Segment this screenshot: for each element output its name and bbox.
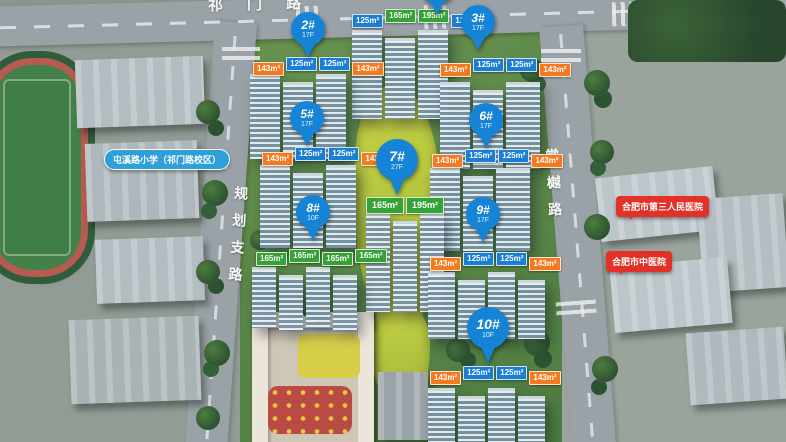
area-tag: 165m² [256,252,287,266]
pin-label: 3# [471,12,484,24]
area-tag: 125m² [496,366,527,380]
pin-label: 10# [476,317,499,331]
tower [518,396,545,442]
pin-floors: 17F [480,123,492,130]
trees [202,180,228,206]
hospital-building [686,327,786,406]
service-building [378,372,428,440]
area-tag: 125m² [286,57,317,71]
pin-head: 3# 17F [461,5,495,39]
area-tag: 125m² [352,14,383,28]
area-tag: 143m² [531,154,562,168]
kindergarten-playground [268,386,352,434]
area-tags-building-7: 165m² 195m² [366,197,444,214]
tower [306,267,330,328]
tower [428,388,455,442]
pin-tail [480,345,496,363]
tower [428,272,455,339]
tower [518,280,545,339]
pin-building-5[interactable]: 5# 17F [290,101,324,146]
area-tag: 143m² [529,257,560,271]
site-plan-aerial-map: 祁门路 规划支路 棠樾路 屯溪路小学（祁门路校区） 合肥市第三人民医院 合肥市中… [0,0,786,442]
hospital-third-label: 合肥市第三人民医院 [616,196,709,217]
area-tag: 143m² [539,63,570,77]
area-tags-building-2: 143m² 125m² 125m² 143m² [253,60,384,74]
pin-head: 7# 27F [376,139,418,181]
pin-label: 9# [476,204,489,216]
area-tag: 143m² [253,62,284,76]
area-tag: 125m² [506,58,537,72]
tower [252,267,276,328]
area-tag: 165m² [322,252,353,266]
sports-pitch [3,79,71,256]
building-10 [428,388,545,442]
trees [584,70,610,96]
area-tag: 165m² [289,249,320,263]
area-tags-building-9: 143m² 125m² 125m² 143m² [430,255,561,269]
pin-building-1-partial[interactable] [420,0,454,15]
tower [326,165,356,248]
area-tag: 143m² [440,63,471,77]
area-tags-building-3: 143m² 125m² 125m² 143m² [440,61,571,75]
pin-building-6[interactable]: 6# 17F [469,103,503,148]
pin-floors: 10F [307,215,319,222]
pin-building-7[interactable]: 7# 27F [376,139,418,195]
area-tag: 195m² [406,197,444,214]
pin-building-2[interactable]: 2# 17F [291,12,325,57]
area-tag: 143m² [352,62,383,76]
pin-label: 8# [306,202,319,214]
pin-floors: 10F [482,332,494,339]
tower [333,275,357,330]
tower [393,221,417,312]
area-tags-building-6: 143m² 125m² 125m² 143m² [432,152,563,166]
area-tag: 125m² [463,366,494,380]
tower [279,275,303,330]
area-tag: 143m² [430,371,461,385]
trees [628,0,786,62]
tower [260,165,290,248]
kindergarten-wing [252,312,268,442]
area-tag: 125m² [498,149,529,163]
area-tag: 143m² [430,257,461,271]
pin-head: 10# 10F [467,307,509,349]
pin-head: 8# 10F [296,195,330,229]
sports-track [0,58,88,277]
kindergarten-yard [298,334,360,378]
pin-tail [305,225,321,240]
trees [584,214,610,240]
trees [590,140,614,164]
trees [204,340,230,366]
pin-building-3[interactable]: 3# 17F [461,5,495,50]
area-tag: 165m² [355,249,386,263]
pin-tail [429,0,445,15]
pin-label: 5# [300,108,313,120]
crosswalk [556,299,597,316]
pin-tail [389,177,405,195]
school-label: 屯溪路小学（祁门路校区） [104,149,230,170]
trees [592,356,618,382]
tower [496,168,530,251]
pin-tail [478,133,494,148]
area-tag: 165m² [385,9,416,23]
pin-label: 2# [301,19,314,31]
pin-floors: 17F [301,121,313,128]
building-8 [252,267,357,330]
pin-head: 5# 17F [290,101,324,135]
pin-head: 2# 17F [291,12,325,46]
pin-floors: 27F [391,164,403,171]
pin-floors: 17F [472,25,484,32]
area-tag: 125m² [463,252,494,266]
pin-label: 6# [479,110,492,122]
area-tag: 143m² [432,154,463,168]
pin-floors: 17F [302,32,314,39]
trees [196,260,220,284]
tower [488,388,515,442]
area-tag: 143m² [529,371,560,385]
pin-floors: 17F [477,217,489,224]
pin-building-9[interactable]: 9# 17F [466,197,500,242]
area-tags-building-10: 143m² 125m² 125m² 143m² [430,369,561,383]
pin-building-10[interactable]: 10# 10F [467,307,509,363]
trees [196,406,220,430]
area-tag: 125m² [496,252,527,266]
hospital-tcm-label: 合肥市中医院 [606,251,672,272]
pin-building-8[interactable]: 8# 10F [296,195,330,240]
kindergarten [252,312,374,442]
kindergarten-wing [358,312,374,442]
pin-tail [299,131,315,146]
tower [385,38,415,119]
crosswalk [541,48,581,62]
tower [458,396,485,442]
school-building [75,56,205,128]
pin-label: 7# [389,149,405,163]
school-building [95,236,205,304]
tower [250,74,280,159]
pin-head: 9# 17F [466,197,500,231]
pin-head: 6# 17F [469,103,503,137]
neighbor-building [69,316,202,404]
area-tags-building-8: 165m² 165m² 165m² 165m² [256,252,387,266]
area-tag: 125m² [328,147,359,161]
trees [196,100,220,124]
area-tags-building-5: 143m² 125m² 125m² 143m² [262,150,393,164]
pin-tail [475,227,491,242]
area-tag: 165m² [366,197,404,214]
area-tag: 125m² [295,147,326,161]
pin-tail [300,42,316,57]
crosswalk [222,46,260,60]
pin-tail [470,35,486,50]
area-tag: 125m² [465,149,496,163]
area-tag: 125m² [473,58,504,72]
area-tag: 143m² [262,152,293,166]
area-tag: 125m² [319,57,350,71]
